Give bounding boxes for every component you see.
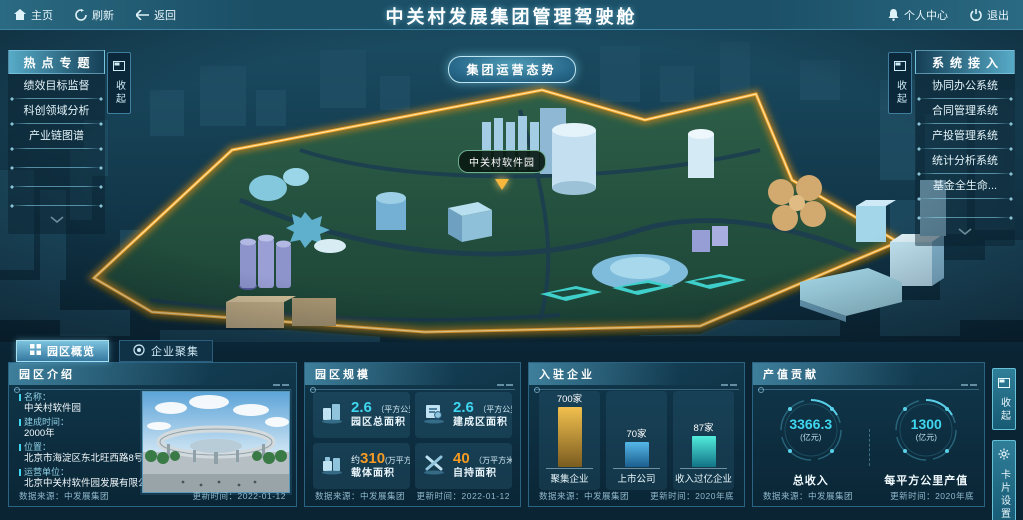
collapse-label: 收起 — [112, 80, 127, 106]
collapse-icon — [998, 375, 1010, 393]
decor-line — [14, 389, 291, 390]
output-contribution-panel: 产值贡献 3366.3 (亿元) 总收入 — [752, 362, 985, 507]
field-built-time: 建成时间： 2000年 — [19, 417, 145, 440]
stat-value: 2.6 — [453, 399, 474, 416]
kpi-unit: (亿元) — [800, 432, 821, 443]
map-pin[interactable]: 中关村软件园 — [454, 150, 550, 190]
kpi-ring: 3366.3 (亿元) — [776, 395, 846, 465]
divider — [918, 217, 1012, 218]
divider — [11, 167, 102, 168]
refresh-icon — [75, 9, 87, 21]
map-pin-marker-icon — [495, 179, 509, 190]
bar — [625, 442, 649, 467]
divider — [869, 429, 870, 466]
field-operator: 运营单位： 北京中关村软件园发展有限公司 — [19, 467, 145, 490]
updated-time: 更新时间：2020年底 — [890, 490, 974, 502]
output-stats: 3366.3 (亿元) 总收入 1300 — [753, 393, 984, 488]
personal-center-button[interactable]: 个人中心 — [888, 7, 948, 23]
kpi-label: 每平方公里产值 — [869, 472, 985, 488]
bell-icon — [888, 9, 899, 21]
park-photo — [142, 391, 290, 493]
stat-value: 310 — [360, 450, 385, 467]
refresh-label: 刷新 — [92, 7, 114, 23]
park-intro-panel: 园区介绍 名称： 中关村软件园 建成时间： 2000年 位置： 北京市海淀区东北… — [8, 362, 297, 507]
chart-column: 87家收入过亿企业 — [673, 391, 734, 490]
gear-icon — [998, 447, 1010, 465]
sidebar-item-industry-chain[interactable]: 产业链图谱 — [8, 124, 105, 148]
bar-category-label: 收入过亿企业 — [673, 471, 734, 485]
bar — [692, 436, 716, 467]
kpi-ring: 1300 (亿元) — [891, 395, 961, 465]
stat-output-per-sqkm: 1300 (亿元) 每平方公里产值 — [869, 393, 985, 488]
topbar: 主页 刷新 返回 中关村发展集团管理驾驶舱 个人中心 退出 — [0, 0, 1023, 30]
buildings-icon — [320, 402, 344, 429]
divider — [11, 148, 102, 149]
home-button[interactable]: 主页 — [14, 7, 53, 23]
updated-time: 更新时间：2020年底 — [650, 490, 734, 502]
enterprise-chart: 700家聚集企业70家上市公司87家收入过亿企业 — [539, 391, 734, 490]
data-source: 数据来源：中发展集团 — [763, 490, 853, 502]
map-scene: 集团运营态势 中关村软件园 — [0, 30, 1023, 342]
updated-time: 更新时间：2022-01-12 — [193, 490, 286, 502]
sidebar-item-collab-office[interactable]: 协同办公系统 — [915, 74, 1015, 98]
topbar-left-nav: 主页 刷新 返回 — [14, 7, 176, 23]
power-icon — [970, 9, 982, 21]
hot-topics-panel: 热点专题 绩效目标监督 科创领域分析 产业链图谱 — [8, 50, 105, 234]
stat-total-revenue: 3366.3 (亿元) 总收入 — [753, 393, 869, 488]
decor-line — [758, 389, 979, 390]
kpi-value: 3366.3 — [789, 417, 832, 432]
tab-label: 企业聚集 — [151, 343, 199, 359]
system-access-collapse-button[interactable]: 收起 — [888, 52, 912, 114]
logout-button[interactable]: 退出 — [970, 7, 1009, 23]
chart-column: 700家聚集企业 — [539, 391, 600, 490]
data-source: 数据来源：中发展集团 — [19, 490, 109, 502]
target-icon — [133, 344, 145, 359]
collapse-icon — [894, 58, 906, 76]
resident-enterprises-panel: 入驻企业 700家聚集企业70家上市公司87家收入过亿企业 数据来源：中发展集团… — [528, 362, 745, 507]
panel-footer: 数据来源：中发展集团 更新时间：2022-01-12 — [19, 490, 286, 502]
page-title: 中关村发展集团管理驾驶舱 — [386, 3, 638, 29]
hot-topics-title: 热点专题 — [8, 50, 105, 74]
card-settings-button[interactable]: 卡片设置 — [992, 440, 1016, 520]
factory-icon — [320, 453, 344, 480]
system-access-title: 系统接入 — [915, 50, 1015, 74]
stat-label: 载体面积 — [351, 467, 410, 480]
bottom-tabbar: 园区概览 企业聚集 — [16, 340, 213, 362]
stat-value: 40 — [453, 450, 470, 467]
bar-value-label: 87家 — [693, 420, 713, 434]
sidebar-item-performance-goals[interactable]: 绩效目标监督 — [8, 74, 105, 98]
decor-line — [310, 389, 515, 390]
data-source: 数据来源：中发展集团 — [315, 490, 405, 502]
stat-label: 自持面积 — [453, 467, 512, 480]
divider — [11, 205, 102, 206]
crossed-tools-icon — [422, 453, 446, 480]
panel-footer: 数据来源：中发展集团 更新时间：2022-01-12 — [315, 490, 510, 502]
back-arrow-icon — [136, 10, 149, 20]
collapse-label: 收起 — [893, 80, 908, 106]
tab-enterprise-cluster[interactable]: 企业聚集 — [119, 340, 213, 362]
bar-value-label: 700家 — [557, 391, 582, 405]
back-button[interactable]: 返回 — [136, 7, 176, 23]
park-scale-cells: 2.6 （平方公里） 园区总面积 2.6 （平方公里） 建成区面积 约310(万… — [313, 392, 512, 489]
bar — [558, 407, 582, 467]
stat-label: 园区总面积 — [351, 416, 410, 429]
bar-baseline — [680, 468, 727, 469]
stat-cell-total-area: 2.6 （平方公里） 园区总面积 — [313, 392, 410, 438]
chart-column: 70家上市公司 — [606, 391, 667, 490]
panel-footer: 数据来源：中发展集团 更新时间：2020年底 — [539, 490, 734, 502]
kpi-value: 1300 — [911, 417, 942, 432]
decor-line — [534, 389, 739, 390]
document-icon — [422, 402, 446, 429]
personal-center-label: 个人中心 — [904, 7, 948, 23]
refresh-button[interactable]: 刷新 — [75, 7, 114, 23]
dashboard-root: 主页 刷新 返回 中关村发展集团管理驾驶舱 个人中心 退出 — [0, 0, 1023, 520]
cards-collapse-button[interactable]: 收起 — [992, 368, 1016, 430]
divider — [11, 186, 102, 187]
topbar-right-nav: 个人中心 退出 — [888, 7, 1009, 23]
collapse-label: 收起 — [997, 397, 1012, 423]
field-location: 位置： 北京市海淀区东北旺西路8号 — [19, 442, 145, 465]
system-access-panel: 系统接入 协同办公系统 合同管理系统 产投管理系统 统计分析系统 基金全生命..… — [915, 50, 1015, 246]
sidebar-item-investment-mgmt[interactable]: 产投管理系统 — [915, 124, 1015, 148]
updated-time: 更新时间：2022-01-12 — [417, 490, 510, 502]
home-label: 主页 — [31, 7, 53, 23]
output-contribution-title: 产值贡献 — [753, 363, 984, 385]
card-settings-label: 卡片设置 — [997, 469, 1012, 520]
field-name: 名称： 中关村软件园 — [19, 392, 145, 415]
panel-footer: 数据来源：中发展集团 更新时间：2020年底 — [763, 490, 974, 502]
hot-topics-collapse-button[interactable]: 收起 — [107, 52, 131, 114]
sidebar-item-fund-lifecycle[interactable]: 基金全生命... — [915, 174, 1015, 198]
map-pin-label: 中关村软件园 — [458, 150, 546, 173]
sidebar-item-scitech-analysis[interactable]: 科创领域分析 — [8, 99, 105, 123]
sidebar-item-contract-mgmt[interactable]: 合同管理系统 — [915, 99, 1015, 123]
tab-park-overview[interactable]: 园区概览 — [16, 340, 109, 362]
bar-baseline — [613, 468, 660, 469]
back-label: 返回 — [154, 7, 176, 23]
grid-icon — [30, 344, 41, 358]
overview-button[interactable]: 集团运营态势 — [447, 56, 575, 83]
kpi-label: 总收入 — [753, 472, 869, 488]
bar-baseline — [546, 468, 593, 469]
park-intro-title: 园区介绍 — [9, 363, 296, 385]
stat-cell-built-area: 2.6 （平方公里） 建成区面积 — [415, 392, 512, 438]
logout-label: 退出 — [987, 7, 1009, 23]
divider — [918, 198, 1012, 199]
resident-enterprises-title: 入驻企业 — [529, 363, 744, 385]
bar-value-label: 70家 — [626, 426, 646, 440]
park-scale-title: 园区规模 — [305, 363, 520, 385]
kpi-unit: (亿元) — [916, 432, 937, 443]
stat-label: 建成区面积 — [453, 416, 512, 429]
home-icon — [14, 9, 26, 20]
data-source: 数据来源：中发展集团 — [539, 490, 629, 502]
tab-label: 园区概览 — [47, 343, 95, 359]
bar-category-label: 上市公司 — [606, 471, 667, 485]
park-scale-panel: 园区规模 2.6 （平方公里） 园区总面积 2.6 （平方公里） 建成区面积 — [304, 362, 521, 507]
stat-cell-carrier-area: 约310(万平方米) 载体面积 — [313, 443, 410, 489]
stat-cell-selfheld-area: 40 （万平方米） 自持面积 — [415, 443, 512, 489]
collapse-icon — [113, 58, 125, 76]
sidebar-item-statistics[interactable]: 统计分析系统 — [915, 149, 1015, 173]
stat-value: 2.6 — [351, 399, 372, 416]
bar-category-label: 聚集企业 — [539, 471, 600, 485]
park-intro-fields: 名称： 中关村软件园 建成时间： 2000年 位置： 北京市海淀区东北旺西路8号… — [19, 392, 145, 492]
